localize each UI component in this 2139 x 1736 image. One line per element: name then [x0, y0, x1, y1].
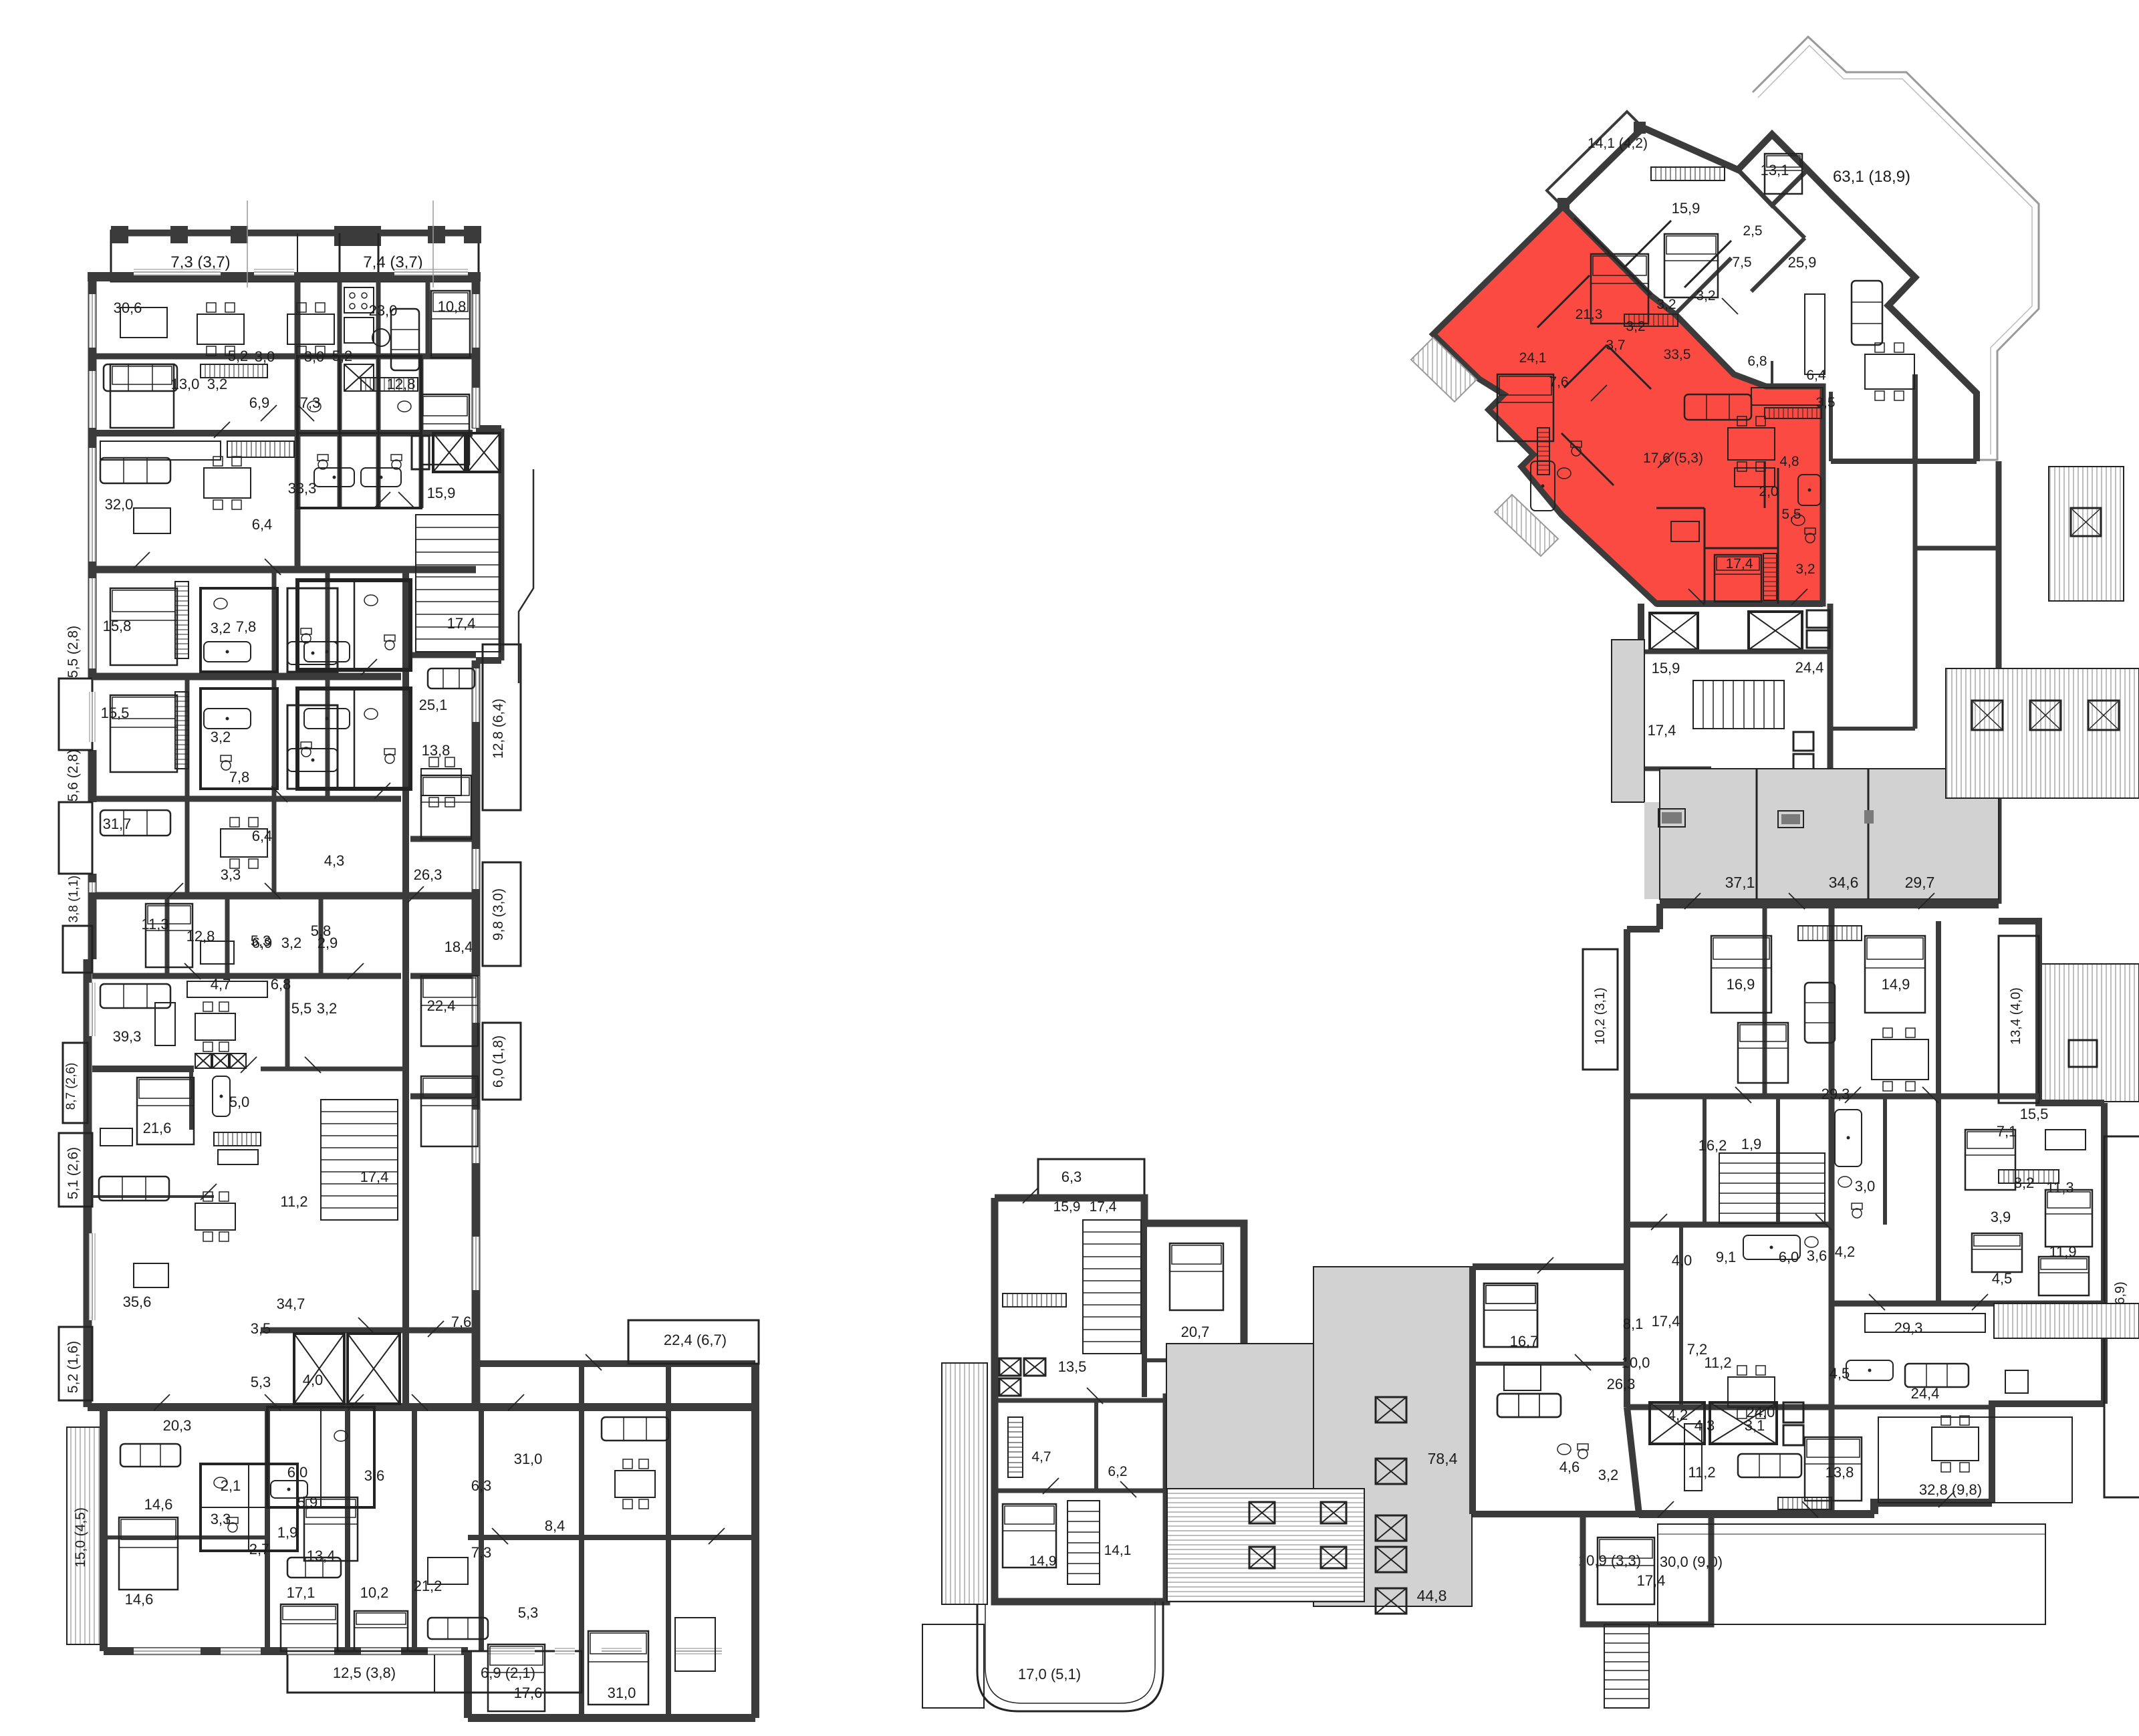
svg-text:6,4: 6,4 [252, 828, 273, 844]
svg-text:21,6: 21,6 [143, 1120, 172, 1136]
svg-text:26,3: 26,3 [1607, 1376, 1636, 1392]
svg-text:6,9: 6,9 [249, 394, 270, 411]
svg-text:13,8: 13,8 [1826, 1464, 1854, 1481]
svg-text:6,9: 6,9 [252, 935, 273, 951]
svg-text:5,5: 5,5 [291, 1000, 312, 1017]
svg-text:4,3: 4,3 [324, 852, 345, 869]
svg-text:8,7 (2,6): 8,7 (2,6) [64, 1063, 78, 1110]
svg-text:3,2: 3,2 [1626, 319, 1645, 334]
svg-text:5,2 (1,6): 5,2 (1,6) [66, 1341, 81, 1393]
svg-text:14,9: 14,9 [1882, 976, 1910, 993]
svg-text:3,9: 3,9 [1991, 1209, 2011, 1225]
svg-text:7,3 (3,7): 7,3 (3,7) [170, 253, 230, 271]
svg-text:18,4: 18,4 [445, 939, 473, 955]
svg-text:7,4 (3,7): 7,4 (3,7) [363, 253, 422, 271]
svg-text:25,1: 25,1 [419, 697, 448, 713]
svg-text:29,7: 29,7 [1905, 874, 1935, 891]
svg-text:7,3: 7,3 [300, 394, 321, 411]
svg-text:78,4: 78,4 [1428, 1450, 1458, 1467]
svg-text:7,2: 7,2 [1687, 1341, 1708, 1358]
svg-text:9,1: 9,1 [1716, 1249, 1737, 1265]
svg-text:14,6: 14,6 [144, 1496, 173, 1513]
svg-text:33,3: 33,3 [288, 480, 317, 497]
svg-text:3,0: 3,0 [1855, 1178, 1876, 1195]
svg-text:17,4: 17,4 [1648, 722, 1676, 739]
svg-text:5,3: 5,3 [251, 1374, 271, 1390]
svg-text:16,9: 16,9 [1727, 976, 1755, 993]
svg-text:31,7: 31,7 [103, 816, 132, 832]
svg-text:5,0: 5,0 [229, 1094, 250, 1110]
svg-text:15,9: 15,9 [1652, 660, 1680, 676]
svg-text:10,2 (3,1): 10,2 (3,1) [1593, 987, 1608, 1045]
svg-text:6,3: 6,3 [1061, 1168, 1082, 1185]
svg-text:7,6: 7,6 [1549, 374, 1568, 390]
svg-text:3,2: 3,2 [211, 729, 231, 745]
svg-text:13,8: 13,8 [422, 742, 451, 759]
svg-text:1,9: 1,9 [1741, 1136, 1762, 1152]
svg-text:5,3: 5,3 [518, 1604, 539, 1621]
svg-text:3,2: 3,2 [317, 1000, 338, 1017]
svg-text:4,7: 4,7 [1031, 1449, 1051, 1465]
svg-text:15,9: 15,9 [427, 485, 456, 501]
svg-text:12,8 (6,4): 12,8 (6,4) [491, 699, 506, 759]
svg-text:3,6: 3,6 [364, 1467, 385, 1484]
svg-text:4,7: 4,7 [211, 976, 231, 993]
svg-text:17,1: 17,1 [287, 1584, 316, 1601]
svg-text:14,6: 14,6 [125, 1591, 154, 1608]
svg-text:4,0: 4,0 [303, 1372, 324, 1388]
svg-text:7,8: 7,8 [229, 769, 250, 785]
svg-text:3,5: 3,5 [251, 1320, 271, 1337]
svg-text:6,4: 6,4 [252, 516, 273, 533]
svg-text:16,2: 16,2 [1698, 1137, 1727, 1154]
svg-text:25,9: 25,9 [1788, 254, 1817, 271]
svg-text:35,6: 35,6 [123, 1293, 152, 1310]
svg-text:3,5: 3,5 [1815, 395, 1835, 410]
svg-text:5,2: 5,2 [332, 348, 353, 364]
svg-text:7,5: 7,5 [1732, 255, 1751, 270]
svg-text:8,4: 8,4 [545, 1517, 565, 1534]
svg-text:3,2: 3,2 [1795, 562, 1815, 577]
svg-text:3,2: 3,2 [1598, 1467, 1619, 1483]
svg-text:10,8: 10,8 [438, 298, 467, 315]
svg-text:34,7: 34,7 [277, 1295, 305, 1312]
svg-text:31,0: 31,0 [514, 1451, 543, 1467]
svg-text:11,2: 11,2 [280, 1193, 307, 1210]
svg-text:13,5: 13,5 [1058, 1358, 1087, 1375]
svg-text:2,7: 2,7 [249, 1541, 270, 1558]
svg-text:5,6 (2,8): 5,6 (2,8) [66, 749, 81, 801]
svg-text:7,8: 7,8 [236, 618, 257, 635]
svg-text:2,0: 2,0 [1759, 484, 1778, 499]
svg-text:17,4: 17,4 [447, 615, 476, 632]
svg-text:6,3: 6,3 [471, 1477, 492, 1494]
svg-text:3,2: 3,2 [211, 620, 231, 636]
svg-text:15,9: 15,9 [1053, 1199, 1081, 1215]
svg-text:12,5 (3,8): 12,5 (3,8) [333, 1664, 396, 1681]
svg-text:17,4: 17,4 [1637, 1572, 1666, 1589]
svg-text:3,7: 3,7 [1606, 338, 1625, 353]
svg-text:13,4 (4,0): 13,4 (4,0) [2009, 987, 2023, 1045]
svg-text:4,2: 4,2 [1835, 1243, 1856, 1260]
svg-text:2,9: 2,9 [318, 935, 338, 951]
svg-text:15,5: 15,5 [2020, 1106, 2049, 1122]
svg-text:6,0: 6,0 [287, 1464, 308, 1481]
svg-text:3,0: 3,0 [255, 348, 275, 365]
svg-text:4,2: 4,2 [1668, 1406, 1688, 1423]
svg-text:11,3: 11,3 [2046, 1179, 2073, 1196]
svg-text:7,3: 7,3 [471, 1544, 492, 1561]
svg-text:3,3: 3,3 [211, 1511, 231, 1527]
svg-text:6,0: 6,0 [1779, 1249, 1799, 1265]
svg-text:4,8: 4,8 [1779, 454, 1799, 469]
svg-text:14,9: 14,9 [1029, 1554, 1057, 1569]
svg-text:10,9 (3,3): 10,9 (3,3) [1578, 1552, 1641, 1569]
svg-text:44,8: 44,8 [1417, 1587, 1447, 1604]
svg-text:11,2: 11,2 [1704, 1354, 1731, 1371]
svg-text:17,6: 17,6 [514, 1685, 543, 1701]
svg-text:4,0: 4,0 [1672, 1252, 1692, 1269]
svg-text:15,0 (4,5): 15,0 (4,5) [73, 1507, 88, 1568]
svg-text:1,9: 1,9 [277, 1524, 298, 1541]
svg-text:24,1: 24,1 [1519, 350, 1547, 366]
svg-text:3,0: 3,0 [304, 348, 325, 365]
svg-text:23,0: 23,0 [369, 302, 398, 319]
svg-text:3,8 (1,1): 3,8 (1,1) [67, 876, 81, 923]
svg-text:17,4: 17,4 [1090, 1199, 1117, 1215]
svg-text:5,1 (2,6): 5,1 (2,6) [66, 1147, 81, 1199]
svg-text:6,8: 6,8 [271, 976, 291, 993]
svg-text:5,5: 5,5 [1781, 507, 1801, 522]
svg-text:4,3: 4,3 [1694, 1417, 1715, 1434]
svg-text:33,5: 33,5 [1664, 347, 1691, 362]
svg-text:7,6: 7,6 [451, 1314, 472, 1330]
svg-text:10,2: 10,2 [360, 1584, 389, 1601]
svg-text:21,3: 21,3 [1576, 307, 1603, 322]
svg-text:29,3: 29,3 [1821, 1086, 1850, 1102]
svg-text:17,4: 17,4 [360, 1168, 389, 1185]
svg-text:20,3: 20,3 [163, 1417, 192, 1434]
svg-text:2,1: 2,1 [221, 1477, 241, 1494]
svg-text:17,0 (5,1): 17,0 (5,1) [1018, 1666, 1081, 1683]
svg-text:14,1 (4,2): 14,1 (4,2) [1588, 136, 1648, 151]
svg-text:22,4 (6,7): 22,4 (6,7) [664, 1332, 727, 1348]
svg-text:6,8: 6,8 [1747, 354, 1767, 369]
svg-text:32,0: 32,0 [105, 496, 134, 513]
svg-text:26,3: 26,3 [414, 866, 443, 883]
svg-text:6,0 (1,8): 6,0 (1,8) [491, 1035, 506, 1088]
svg-text:29,3: 29,3 [1894, 1320, 1923, 1336]
svg-text:20,7: 20,7 [1181, 1324, 1210, 1340]
svg-text:17,4: 17,4 [1726, 556, 1753, 572]
svg-text:3,2: 3,2 [1656, 297, 1676, 312]
svg-text:14,1: 14,1 [1104, 1543, 1132, 1558]
svg-text:6,4: 6,4 [1806, 368, 1826, 383]
svg-text:17,4: 17,4 [1652, 1313, 1680, 1330]
svg-text:24,4: 24,4 [1795, 659, 1824, 676]
svg-text:39,3: 39,3 [113, 1028, 142, 1045]
svg-text:37,1: 37,1 [1725, 874, 1755, 891]
svg-text:5,5 (2,8): 5,5 (2,8) [66, 626, 81, 678]
svg-text:3,2: 3,2 [1696, 288, 1715, 303]
svg-text:3,6: 3,6 [1807, 1247, 1828, 1264]
svg-text:4,6: 4,6 [1559, 1459, 1580, 1475]
svg-text:15,9: 15,9 [1672, 200, 1701, 217]
svg-text:34,6: 34,6 [1829, 874, 1859, 891]
svg-text:8,1: 8,1 [1623, 1316, 1644, 1332]
svg-text:2,5: 2,5 [1743, 223, 1762, 239]
svg-text:9,8 (3,0): 9,8 (3,0) [491, 888, 506, 941]
svg-text:3,2: 3,2 [281, 935, 302, 951]
svg-text:63,1 (18,9): 63,1 (18,9) [1833, 168, 1910, 186]
svg-text:6,2: 6,2 [1108, 1464, 1127, 1479]
svg-text:31,0: 31,0 [608, 1685, 636, 1701]
